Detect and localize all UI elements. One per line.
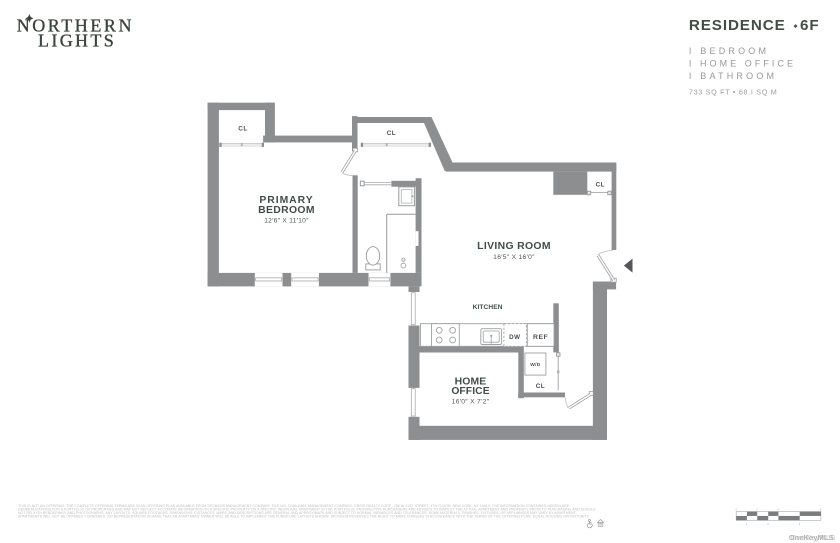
svg-text:DW: DW	[509, 334, 520, 341]
svg-text:I BATHROOM: I BATHROOM	[689, 71, 777, 81]
svg-text:W/D: W/D	[530, 362, 541, 368]
svg-text:OFFICE: OFFICE	[451, 386, 489, 397]
svg-text:REF: REF	[533, 334, 548, 341]
svg-text:RESIDENCE: RESIDENCE	[689, 17, 786, 34]
svg-text:2: 2	[756, 507, 758, 511]
svg-text:APARTMENTS WILL NOT BE OFFERED: APARTMENTS WILL NOT BE OFFERED FURNISHED…	[18, 515, 590, 519]
svg-text:6F: 6F	[800, 17, 820, 34]
svg-text:16′5″ X 16′0″: 16′5″ X 16′0″	[493, 254, 535, 261]
svg-text:LIVING ROOM: LIVING ROOM	[477, 241, 551, 252]
svg-text:1: 1	[746, 522, 748, 526]
svg-text:KITCHEN: KITCHEN	[473, 304, 503, 311]
svg-text:16′0″ X 7′2″: 16′0″ X 7′2″	[452, 398, 490, 405]
svg-text:733 SQ FT • 68.I SQ M: 733 SQ FT • 68.I SQ M	[689, 87, 778, 96]
svg-text:3: 3	[767, 522, 769, 526]
svg-text:CL: CL	[536, 383, 545, 390]
svg-text:4: 4	[777, 507, 779, 511]
svg-text:OneKeyMLS: OneKeyMLS	[791, 533, 836, 542]
svg-text:CL: CL	[387, 130, 396, 137]
svg-text:LIGHTS: LIGHTS	[38, 31, 116, 51]
svg-text:12′6″ X 11′10″: 12′6″ X 11′10″	[264, 217, 309, 224]
svg-text:I BEDROOM: I BEDROOM	[689, 46, 769, 56]
svg-text:BEDROOM: BEDROOM	[258, 205, 315, 216]
svg-text:CL: CL	[238, 126, 247, 133]
svg-text:CL: CL	[596, 181, 605, 188]
svg-text:8: 8	[820, 507, 822, 511]
svg-text:0: 0	[736, 507, 738, 511]
svg-text:I HOME OFFICE: I HOME OFFICE	[689, 59, 796, 69]
svg-text:6: 6	[799, 522, 801, 526]
